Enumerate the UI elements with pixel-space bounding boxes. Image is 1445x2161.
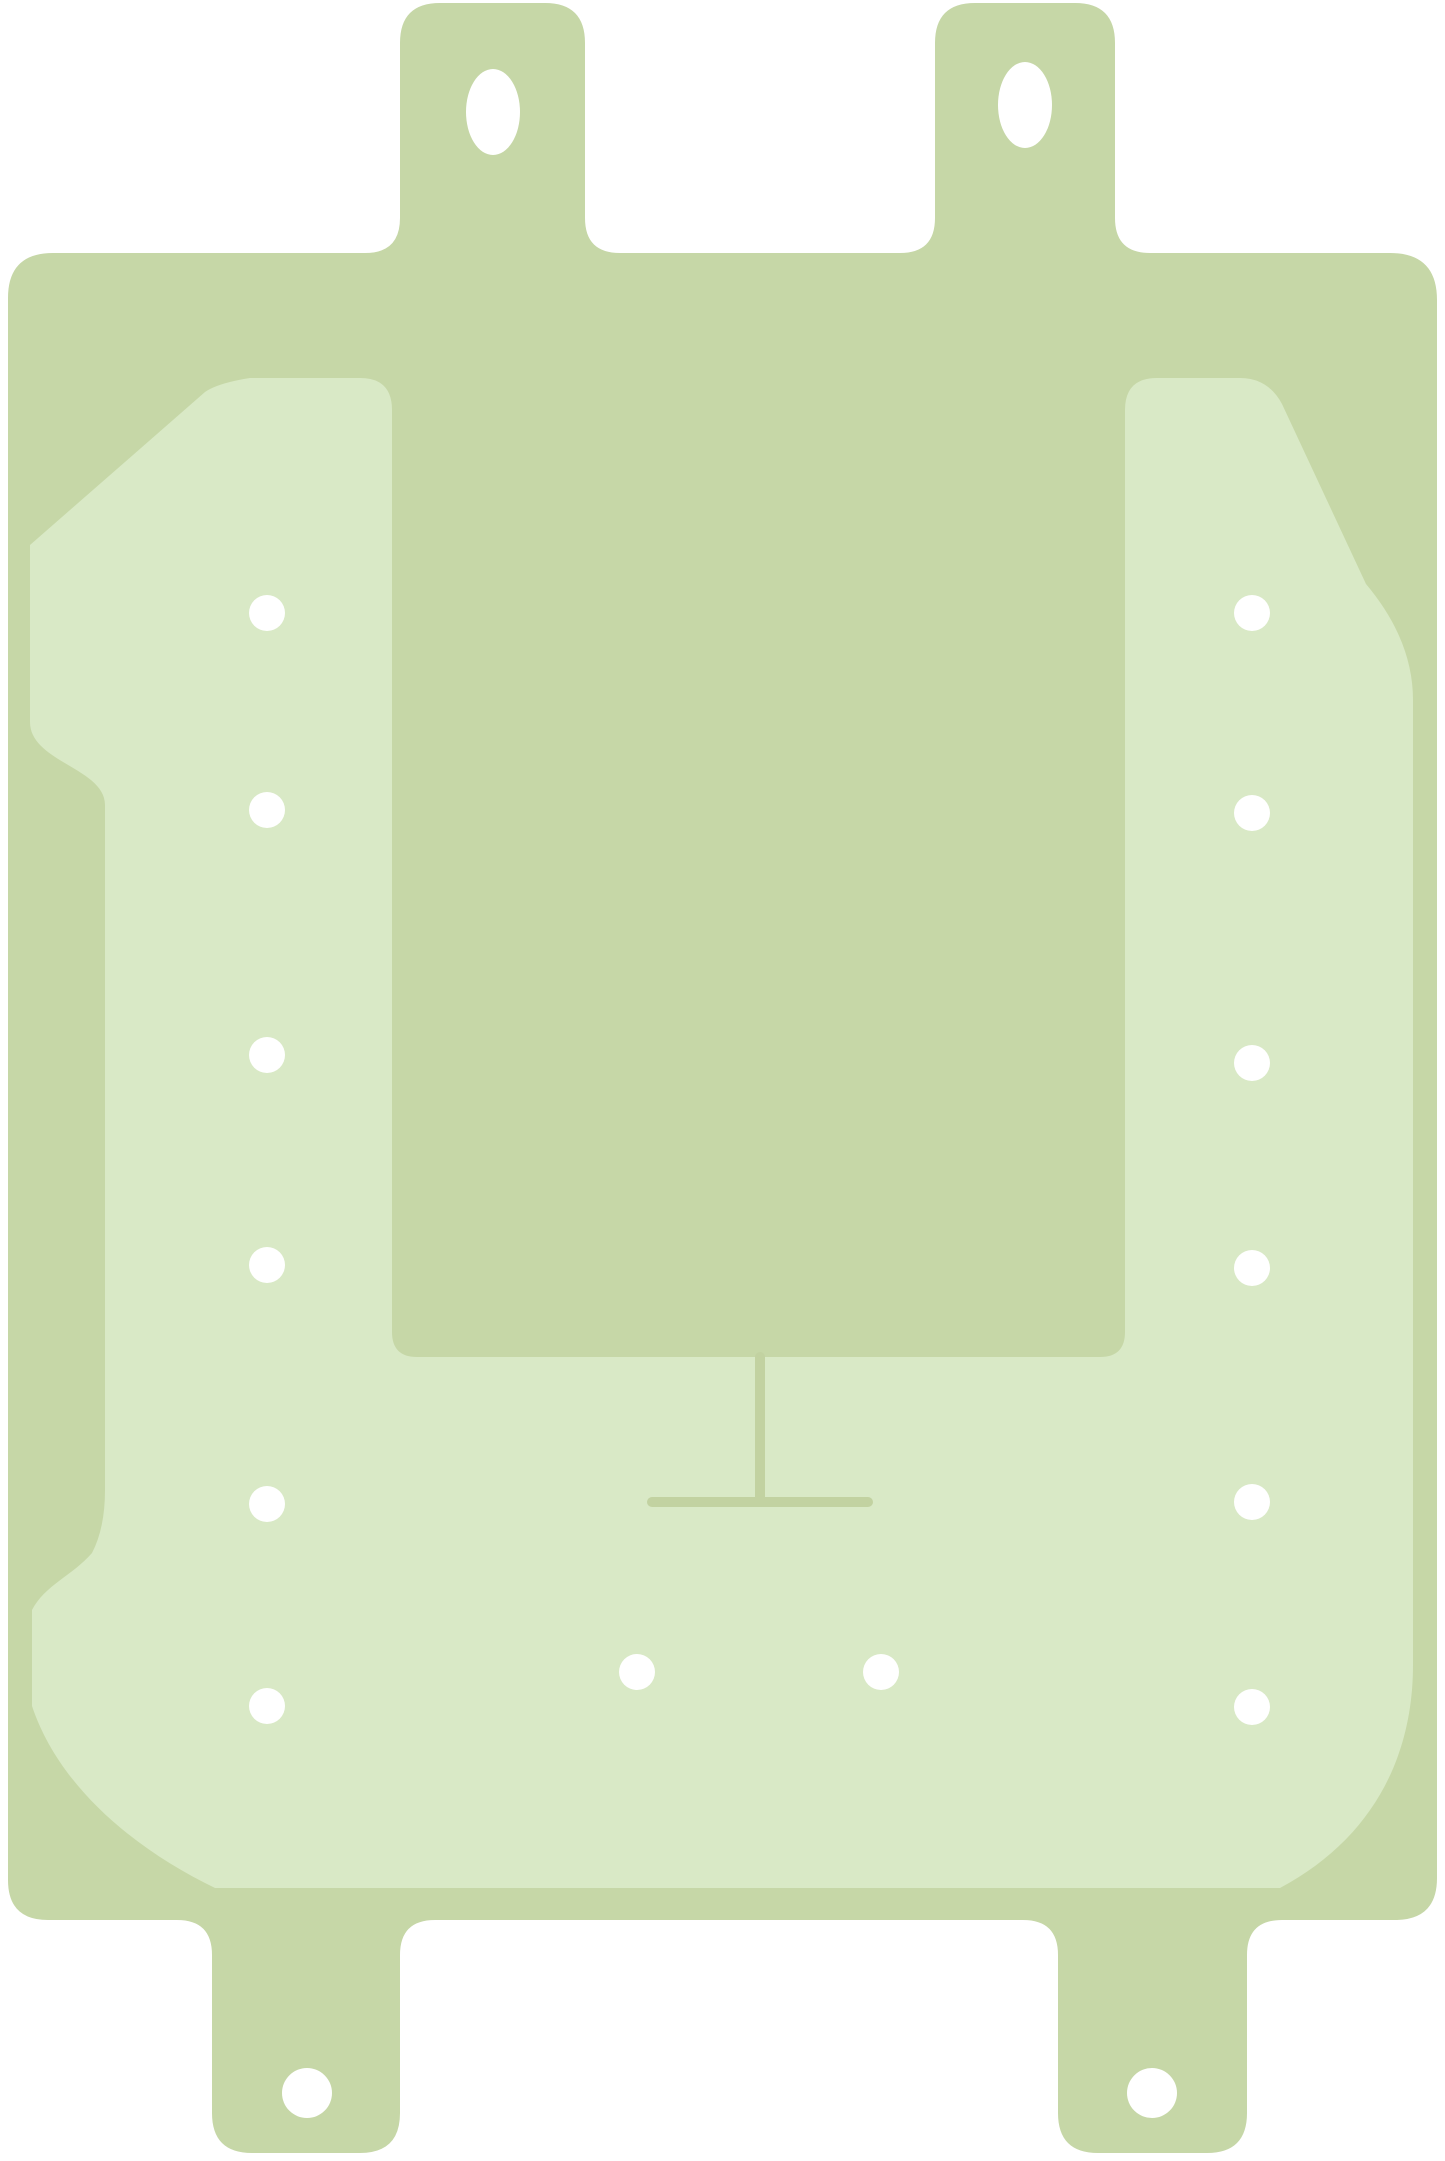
punch-hole-right [1234, 795, 1270, 831]
punch-hole-left [249, 792, 285, 828]
punch-hole-left [249, 1486, 285, 1522]
adhesive-template-graphic [0, 0, 1445, 2161]
punch-hole-right [1234, 595, 1270, 631]
punch-hole-right [1234, 1045, 1270, 1081]
punch-hole-left [249, 1688, 285, 1724]
punch-hole-bottom [863, 1654, 899, 1690]
top-tab-slot-hole [466, 69, 520, 155]
bottom-tab-hole [282, 2068, 332, 2118]
punch-hole-left [249, 1037, 285, 1073]
gasket-svg [0, 0, 1445, 2161]
top-tab-slot-hole [998, 62, 1052, 148]
punch-hole-right [1234, 1484, 1270, 1520]
punch-hole-right [1234, 1689, 1270, 1725]
bottom-tab-hole [1127, 2068, 1177, 2118]
punch-hole-bottom [619, 1654, 655, 1690]
punch-hole-left [249, 595, 285, 631]
punch-hole-left [249, 1247, 285, 1283]
punch-hole-right [1234, 1250, 1270, 1286]
